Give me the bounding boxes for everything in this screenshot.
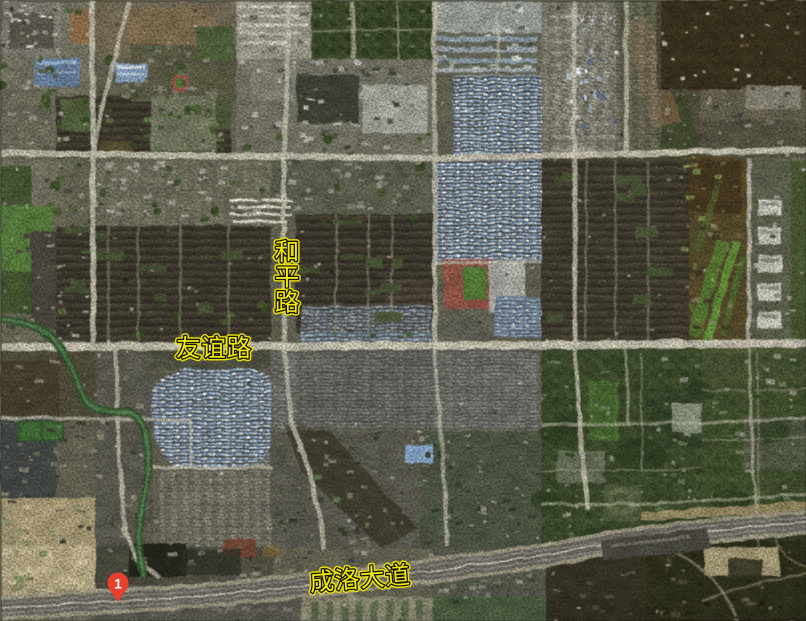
svg-text:1: 1 bbox=[114, 576, 122, 592]
